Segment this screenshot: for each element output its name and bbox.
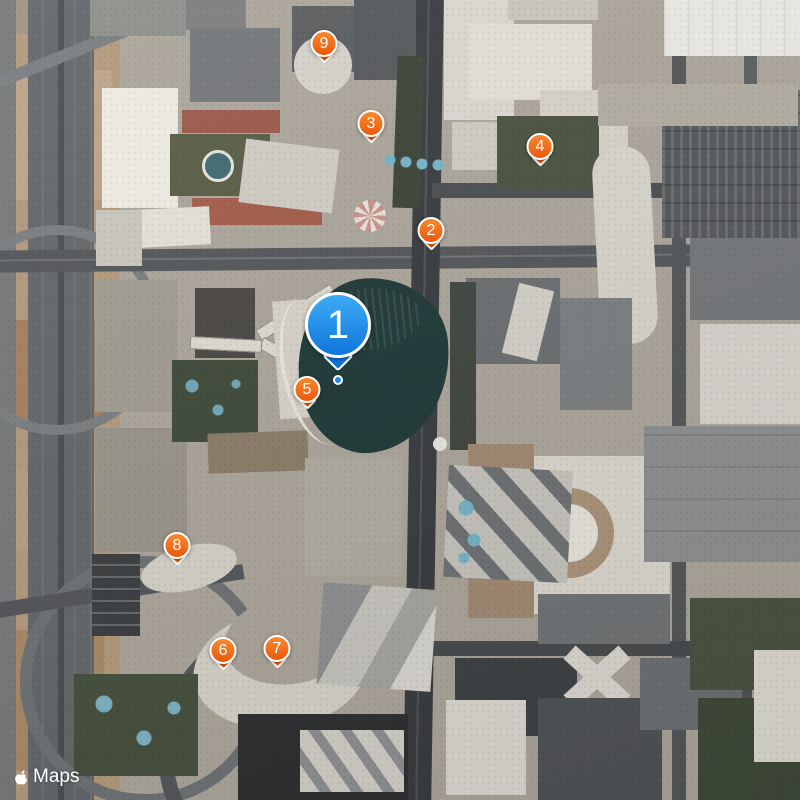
map-pavilion-striped (354, 200, 386, 232)
map-building (95, 280, 177, 412)
map-marker-8[interactable]: 8 (162, 532, 193, 566)
marker-number: 5 (303, 381, 312, 399)
map-trees (392, 56, 424, 209)
map-marker-9[interactable]: 9 (309, 30, 340, 64)
maps-attribution: Maps (13, 766, 79, 788)
marker-number: 3 (367, 115, 376, 133)
map-parking-lot (644, 426, 800, 562)
marker-number: 9 (320, 35, 329, 53)
map-building (190, 28, 280, 102)
marker-bubble: 9 (311, 30, 338, 57)
map-building (690, 238, 800, 320)
marker-number: 7 (273, 640, 282, 658)
marker-bubble: 3 (358, 110, 385, 137)
map-marker-5[interactable]: 5 (292, 376, 323, 410)
satellite-map-canvas[interactable]: 1 2 3 4 5 6 7 (0, 0, 800, 800)
map-building-white-roof (102, 88, 178, 208)
marker-bubble: 6 (210, 637, 237, 664)
map-building-tan (207, 430, 308, 473)
map-trees (450, 282, 476, 450)
map-convention-hall (664, 0, 800, 56)
map-pools-row (452, 496, 492, 566)
marker-number: 2 (427, 222, 436, 240)
map-building (508, 0, 598, 20)
map-building-white-roof (137, 206, 211, 248)
map-building-white-roof (470, 24, 592, 100)
marker-bubble: 1 (305, 292, 371, 358)
map-marker-2[interactable]: 2 (416, 217, 447, 251)
map-building-round-small (433, 437, 447, 451)
marker-bubble: 8 (164, 532, 191, 559)
map-building-white-roof (754, 650, 800, 762)
map-building (538, 594, 670, 644)
map-trees-pools (172, 360, 258, 442)
map-marker-1[interactable]: 1 (302, 292, 374, 372)
attribution-label: Maps (33, 766, 79, 788)
map-pools-row (380, 148, 450, 178)
map-building-zigzag (300, 730, 404, 792)
map-marker-6[interactable]: 6 (208, 637, 239, 671)
map-marker-7[interactable]: 7 (262, 635, 293, 669)
marker-number: 4 (536, 138, 545, 156)
map-promenade (598, 84, 798, 126)
map-building (305, 458, 401, 576)
map-building-white-roof (700, 324, 800, 424)
map-building-dark (92, 554, 140, 636)
location-dot (333, 375, 343, 385)
marker-bubble: 2 (418, 217, 445, 244)
marker-number: 1 (327, 303, 349, 348)
map-marker-3[interactable]: 3 (356, 110, 387, 144)
map-building (90, 0, 186, 36)
marker-number: 8 (173, 537, 182, 555)
map-building (186, 0, 246, 30)
marker-bubble: 5 (294, 376, 321, 403)
map-building-white-roof (446, 700, 526, 795)
map-pool-round (202, 150, 234, 182)
map-building-white-roof (238, 139, 339, 214)
marker-number: 6 (219, 642, 228, 660)
map-building (96, 210, 142, 266)
map-building-angular (317, 582, 438, 692)
marker-bubble: 4 (527, 133, 554, 160)
marker-bubble: 7 (264, 635, 291, 662)
map-marker-4[interactable]: 4 (525, 133, 556, 167)
map-trees-pools (74, 674, 198, 776)
apple-logo-icon (13, 768, 29, 787)
map-building-red-roof (182, 110, 280, 133)
map-building (560, 298, 632, 410)
